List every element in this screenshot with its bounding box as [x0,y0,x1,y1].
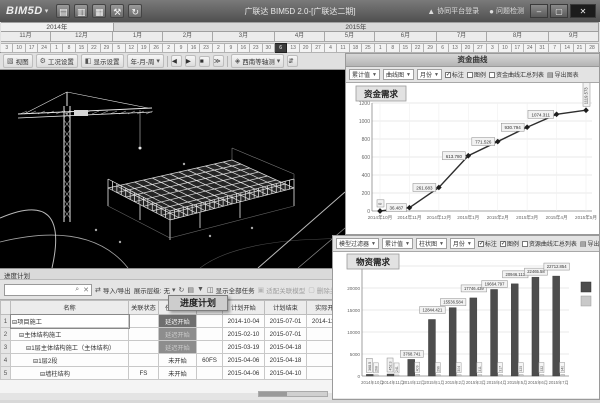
schedule-plan-panel: 进度计划 ⌕ ✕ ⇄ 导入/导出 展示层级: 无 ▾ ↻ ▤ ▼ ◫ 显示全部任… [0,268,332,400]
timeline-day-cell[interactable]: 21 [574,43,586,53]
svg-text:340: 340 [561,366,565,372]
filter-button[interactable]: ▼ [197,286,204,293]
timeline-month[interactable]: 11月 [1,32,51,42]
export-chart-icon: ▤ [580,240,587,248]
collab-login-button[interactable]: ▲ 协同平台登录 [427,6,479,16]
timeline-day-cell[interactable]: 6 [437,43,449,53]
chevron-down-icon: ▾ [172,286,176,294]
timeline-month[interactable]: 8月 [487,32,549,42]
table-row[interactable]: 3⊟ 1层主体结构施工（主体结构）延迟开始2015-03-192015-04-1… [1,341,333,354]
svg-text:2015年1月: 2015年1月 [424,379,444,386]
svg-text:15536.584: 15536.584 [443,300,463,305]
svg-text:2015年5月: 2015年5月 [507,379,527,386]
svg-text:296: 296 [436,366,440,372]
refresh-icon[interactable]: ↻ [128,4,142,18]
timeline-day-cell[interactable]: 25 [362,43,374,53]
timeline-day-cell[interactable]: 30 [263,43,275,53]
column-header[interactable]: 计划开始 [223,301,265,315]
timeline-day-cell[interactable]: 17 [512,43,524,53]
timeline-month[interactable]: 9月 [549,32,599,42]
logo-menu-caret-icon[interactable]: ▾ [45,7,49,15]
chevron-down-icon: ▼ [406,72,411,78]
materials-mark-checkbox[interactable]: ✓ 标注 [478,239,497,248]
timeline-year: 2014年 [1,22,114,32]
svg-text:5000: 5000 [350,352,361,357]
svg-text:22712.854: 22712.854 [547,264,567,269]
svg-text:0: 0 [357,374,360,379]
timeline-day-cell[interactable]: 1 [375,43,387,53]
checkbox-checked-icon: ✓ [445,72,451,78]
materials-aggregate-dropdown[interactable]: 累计值▼ [382,238,413,249]
checkbox-checked-icon: ✓ [478,241,484,247]
play-button[interactable]: ▶ [185,55,196,67]
export-chart-icon: ▤ [547,71,554,79]
timeline-day-cell[interactable]: 24 [524,43,536,53]
timeline-day-cell[interactable]: 16 [238,43,250,53]
svg-text:317: 317 [499,366,503,372]
maximize-button[interactable]: ▢ [550,4,568,18]
funds-toolbar: 累计值▼ 曲线图▼ 月份▼ ✓ 标注 图例 资金曲线汇总列表 ▤ 导出图表 [346,67,599,83]
compass-icon: ◈ [235,57,240,65]
timeline-day-cell[interactable]: 16 [188,43,200,53]
svg-text:物资需求: 物资需求 [356,257,391,267]
search-box: ⌕ ✕ [4,284,92,296]
checkbox-checked-icon: ✓ [500,241,506,247]
chevron-down-icon: ▾ [156,57,160,65]
timeline-day-cell[interactable]: 26 [150,43,162,53]
svg-text:2015年4月: 2015年4月 [487,379,507,386]
materials-toolbar: 模型过滤器▼ 累计值▼ 柱状图▼ 月份▼ ✓ 标注 ✓ 图例 资源曲线汇总列表 … [333,236,599,252]
svg-text:325: 325 [519,366,523,372]
svg-text:600: 600 [362,155,371,161]
svg-text:3768.741: 3768.741 [403,351,421,356]
timeline-month[interactable]: 4月 [275,32,325,42]
table-header-row: 名称关联状态任务状态前置任务计划开始计划结束实际开始 [1,301,333,315]
walkthrough-button[interactable]: ⇵ [287,55,298,67]
svg-text:311: 311 [478,366,482,372]
timeline-day-cell[interactable]: 13 [287,43,299,53]
timeline-day-cell[interactable]: 9 [225,43,237,53]
view-icon: ▧ [7,57,14,65]
funds-panel-title: 资金曲线 [346,54,599,67]
show-all-tasks-button[interactable]: ◫ 显示全部任务 [207,285,255,295]
model-3d-viewport[interactable] [0,70,345,268]
svg-text:1074.311: 1074.311 [532,112,551,117]
timeline-month[interactable]: 1月 [113,32,163,42]
svg-text:20000: 20000 [347,286,360,291]
timeline-day-cell[interactable]: 10 [499,43,511,53]
chevron-down-icon: ▼ [372,72,377,78]
app-logo: BIM5D [0,5,45,17]
svg-text:1119.573: 1119.573 [584,87,589,105]
bim-model-scene [0,70,345,268]
timeline-day-cell[interactable]: 18 [350,43,362,53]
timeline-day-cell[interactable]: 15 [76,43,88,53]
timeline-day-cell[interactable]: 24 [38,43,50,53]
tasks-icon: ◫ [207,286,214,294]
checkbox-icon [489,72,495,78]
timeline-day-cell[interactable]: 22 [412,43,424,53]
fit-model-button[interactable]: ▣ 适配关联模型 [258,285,306,295]
schedule-drag-badge[interactable]: 进度计划 [168,295,228,311]
funds-curve-panel: 资金曲线 累计值▼ 曲线图▼ 月份▼ ✓ 标注 图例 资金曲线汇总列表 ▤ 导出… [345,53,600,235]
timeline-day-row: 3101724181522295121926291623291623306132… [1,42,599,53]
timeline-day-cell[interactable]: 2 [213,43,225,53]
condition-icon: ⚙ [40,57,46,65]
svg-text:1200: 1200 [359,101,370,107]
timeline-month[interactable]: 12月 [51,32,113,42]
schedule-toolbar: ⌕ ✕ ⇄ 导入/导出 展示层级: 无 ▾ ↻ ▤ ▼ ◫ 显示全部任务 ▣ 适… [0,280,332,299]
svg-text:261.683: 261.683 [416,185,433,190]
svg-text:2015年3月: 2015年3月 [516,214,538,221]
svg-text:332: 332 [540,366,544,372]
step-back-button[interactable]: ◀ [171,55,182,67]
clear-search-icon[interactable]: ✕ [81,286,91,294]
materials-legend-checkbox[interactable]: ✓ 图例 [500,239,519,248]
materials-charttype-dropdown[interactable]: 柱状图▼ [416,238,447,249]
display-settings-button[interactable]: ◧ 显示设置 [81,54,124,68]
timeline-day-cell[interactable]: 1 [51,43,63,53]
timeline-day-cell[interactable]: 27 [312,43,324,53]
timeline-day-cell[interactable]: 5 [113,43,125,53]
svg-text:2015年4月: 2015年4月 [546,214,568,221]
materials-bar-chart: 05000100001500020000250002014年10月368.526… [333,252,599,398]
svg-text:400: 400 [362,173,371,179]
funds-summary-checkbox[interactable]: 资金曲线汇总列表 [489,70,544,79]
materials-period-dropdown[interactable]: 月份▼ [450,238,475,249]
status-dot-icon: ● [489,7,494,16]
timeline-day-cell[interactable]: 12 [126,43,138,53]
svg-text:1000: 1000 [359,119,370,125]
timeline-day-cell[interactable]: 29 [101,43,113,53]
search-icon[interactable]: ⌕ [73,286,81,294]
scrollbar-thumb[interactable] [259,392,287,396]
chevron-down-icon: ▼ [467,241,472,247]
chevron-down-icon: ▼ [371,241,376,247]
svg-text:15000: 15000 [347,308,360,313]
table-row[interactable]: 5⊟ 墙柱结构FS未开始2015-04-062015-04-10 [1,367,333,380]
checkbox-icon [522,241,528,247]
materials-export-button[interactable]: ▤ 导出图表 [580,239,599,248]
materials-filter-dropdown[interactable]: 模型过滤器▼ [336,238,379,249]
svg-text:12844.421: 12844.421 [423,307,443,312]
funds-chart-area: 0200400600800100012002014年10月2014年11月201… [346,83,599,234]
svg-text:304: 304 [457,366,461,372]
toolbar-divider [227,56,228,67]
timeline-month[interactable]: 6月 [375,32,437,42]
timeline-day-cell[interactable]: 15 [400,43,412,53]
materials-demand-panel: 模型过滤器▼ 累计值▼ 柱状图▼ 月份▼ ✓ 标注 ✓ 图例 资源曲线汇总列表 … [332,235,600,400]
viewport-toolbar: ▧ 视图 ⚙ 工况设置 ◧ 显示设置 年-月-周 ▾ ◀ ▶ ■ ≫ ◈ 西南等… [0,53,345,70]
funds-aggregate-dropdown[interactable]: 累计值▼ [349,69,380,80]
import-export-button[interactable]: ⇄ 导入/导出 [95,285,131,295]
table-row[interactable]: 4⊟ 1层2段未开始60FS2015-04-062015-04-18 [1,354,333,367]
svg-text:2014年10月: 2014年10月 [361,379,383,386]
import-export-icon: ⇄ [95,286,101,294]
minimize-button[interactable]: – [530,4,548,18]
svg-text:2014年10月: 2014年10月 [368,214,393,221]
chevron-down-icon: ▼ [439,241,444,247]
new-file-icon[interactable]: ▤ [56,4,70,18]
remove-link-icon: ▢ [308,286,315,294]
svg-text:268: 268 [374,366,378,372]
table-row[interactable]: 2⊟ 主体结构施工延迟开始2015-02-102015-07-01 [1,328,333,341]
toolbar-divider [167,56,168,67]
svg-text:22465.58: 22465.58 [527,269,545,274]
svg-text:10000: 10000 [347,330,360,335]
timeline-day-cell[interactable]: 6 [275,43,287,53]
timeline-day-cell[interactable]: 31 [536,43,548,53]
timeline-month[interactable]: 7月 [437,32,487,42]
search-input[interactable] [5,287,73,293]
filter-icon: ▼ [197,286,204,293]
svg-text:2015年2月: 2015年2月 [487,214,509,221]
column-header[interactable]: 计划结束 [265,301,307,315]
svg-text:2015年6月: 2015年6月 [528,379,548,386]
svg-text:2014年12月: 2014年12月 [403,379,425,386]
level-dropdown[interactable]: 展示层级: 无 ▾ [134,285,176,295]
svg-text:409: 409 [416,365,420,371]
timeline-day-cell[interactable]: 3 [487,43,499,53]
svg-text:17746.439: 17746.439 [464,286,484,291]
issue-check-button[interactable]: ● 问题检测 [489,6,524,16]
svg-text:241: 241 [395,366,399,372]
timeline-month-row: 11月12月1月2月3月4月5月6月7月8月9月 [1,32,599,42]
refresh-table-button[interactable]: ↻ [179,286,185,294]
timeline-day-cell[interactable]: 29 [424,43,436,53]
timeline-day-cell[interactable]: 27 [474,43,486,53]
print-button[interactable]: ▤ [187,286,194,294]
timeline-day-cell[interactable]: 19 [138,43,150,53]
open-file-icon[interactable]: ▥ [74,4,88,18]
table-row[interactable]: 1⊟ 项目施工延迟开始2014-10-042015-07-012014-11-0… [1,315,333,328]
svg-text:2014年11月: 2014年11月 [382,379,404,386]
svg-text:资金需求: 资金需求 [364,89,399,99]
timeline-month[interactable]: 3月 [213,32,275,42]
timeline-day-cell[interactable]: 2 [163,43,175,53]
gantt-timeline: 2014年2015年 11月12月1月2月3月4月5月6月7月8月9月 3101… [0,22,600,53]
funds-legend-checkbox[interactable]: 图例 [467,70,486,79]
materials-chart-area: 05000100001500020000250002014年10月368.526… [333,252,599,398]
timeline-month[interactable]: 2月 [163,32,213,42]
checkbox-icon [467,72,473,78]
tools-icon[interactable]: ⚒ [110,4,124,18]
svg-text:2015年7月: 2015年7月 [549,379,569,386]
svg-text:613.780: 613.780 [446,154,463,159]
timeline-day-cell[interactable]: 20 [300,43,312,53]
refresh-icon: ↻ [179,286,185,294]
schedule-table-container: 名称关联状态任务状态前置任务计划开始计划结束实际开始 1⊟ 项目施工延迟开始20… [0,299,332,393]
svg-text:800: 800 [362,137,371,143]
chevron-down-icon: ▼ [405,241,410,247]
timeline-day-cell[interactable]: 14 [561,43,573,53]
timeline-day-cell[interactable]: 28 [586,43,598,53]
funds-mark-checkbox[interactable]: ✓ 标注 [445,70,464,79]
svg-text:19664.797: 19664.797 [485,281,505,286]
funds-charttype-dropdown[interactable]: 曲线图▼ [383,69,414,80]
timeline-year-row: 2014年2015年 [1,22,599,32]
timeline-day-cell[interactable]: 23 [200,43,212,53]
svg-text:2014年12月: 2014年12月 [427,214,452,221]
materials-summary-checkbox[interactable]: 资源曲线汇总列表 [522,239,577,248]
svg-text:368.5: 368.5 [368,362,372,371]
save-icon[interactable]: ▦ [92,4,106,18]
camera-view-dropdown[interactable]: ◈ 西南等轴测 ▾ [231,54,284,68]
chevron-down-icon: ▾ [277,57,281,65]
schedule-panel-title: 进度计划 [0,269,332,280]
timeline-day-cell[interactable]: 13 [449,43,461,53]
timeline-day-cell[interactable]: 9 [175,43,187,53]
close-button[interactable]: ✕ [570,4,596,18]
timeline-day-cell[interactable]: 3 [1,43,13,53]
step-forward-button[interactable]: ≫ [213,55,224,67]
schedule-table: 名称关联状态任务状态前置任务计划开始计划结束实际开始 1⊟ 项目施工延迟开始20… [0,300,332,380]
horizontal-scrollbar[interactable] [258,391,328,397]
timeline-month[interactable]: 5月 [325,32,375,42]
svg-text:771.526: 771.526 [475,140,492,145]
timeline-day-cell[interactable]: 20 [462,43,474,53]
timeline-day-cell[interactable]: 11 [337,43,349,53]
svg-text:200: 200 [362,191,371,197]
timeline-year: 2015年 [114,22,599,32]
svg-text:930.794: 930.794 [505,125,522,130]
svg-text:2014年11月: 2014年11月 [397,214,421,221]
timeline-day-cell[interactable]: 8 [387,43,399,53]
cloud-upload-icon: ▲ [427,7,435,16]
stop-button[interactable]: ■ [199,56,210,67]
svg-text:452.3: 452.3 [389,362,393,371]
timeline-day-cell[interactable]: 8 [63,43,75,53]
timeline-day-cell[interactable]: 17 [26,43,38,53]
svg-text:36.487: 36.487 [389,206,403,211]
timeline-day-cell[interactable]: 4 [325,43,337,53]
view-button[interactable]: ▧ 视图 [3,54,33,68]
column-header[interactable]: 实际开始 [307,301,333,315]
timeline-day-cell[interactable]: 23 [250,43,262,53]
funds-line-chart: 0200400600800100012002014年10月2014年11月201… [346,83,599,234]
svg-text:2015年1月: 2015年1月 [457,214,479,221]
svg-text:2015年2月: 2015年2月 [445,379,465,386]
funds-export-button[interactable]: ▤ 导出图表 [547,70,579,79]
time-scale-dropdown[interactable]: 年-月-周 ▾ [127,54,164,68]
printer-icon: ▤ [187,286,194,294]
display-icon: ◧ [85,57,92,65]
fit-model-icon: ▣ [258,286,265,294]
timeline-day-cell[interactable]: 10 [13,43,25,53]
timeline-day-cell[interactable]: 22 [88,43,100,53]
title-bar: BIM5D ▾ ▤ ▥ ▦ ⚒ ↻ 广联达 BIM5D 2.0-[广联达二期] … [0,0,600,22]
chevron-down-icon: ▼ [434,72,439,78]
svg-text:2015年5月: 2015年5月 [575,214,597,221]
column-header[interactable]: 名称 [11,301,129,315]
funds-period-dropdown[interactable]: 月份▼ [417,69,442,80]
work-condition-button[interactable]: ⚙ 工况设置 [36,54,78,68]
column-header[interactable]: 关联状态 [129,301,159,315]
svg-text:20946.113: 20946.113 [506,272,526,277]
svg-text:2015年3月: 2015年3月 [466,379,486,386]
timeline-day-cell[interactable]: 7 [549,43,561,53]
